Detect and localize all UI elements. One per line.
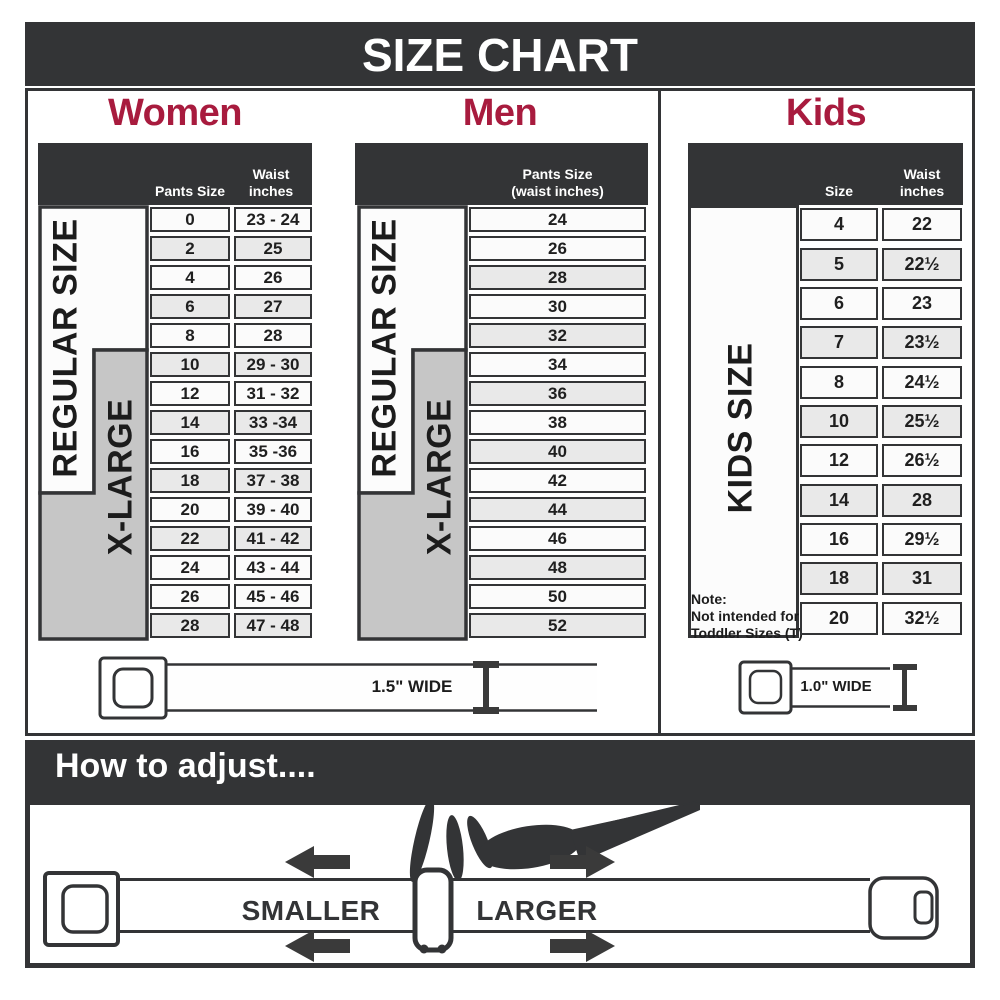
table-row: 52 [469,611,646,640]
size-cell: 6 [150,294,230,319]
table-row: 422 [800,205,962,244]
belt-buckle-button [114,669,152,707]
table-row: 2847 - 48 [150,611,312,640]
waist-cell: 28 [234,323,312,348]
table-row: 1029 - 30 [150,350,312,379]
size-cell: 5 [800,248,878,281]
size-cell: 30 [469,294,646,319]
belt-buckle-button [63,886,107,932]
size-cell: 28 [469,265,646,290]
size-cell: 10 [150,352,230,377]
slider-foot [438,945,447,954]
table-row: 1428 [800,481,962,520]
size-cell: 12 [150,381,230,406]
waist-cell: 45 - 46 [234,584,312,609]
table-row: 40 [469,437,646,466]
slider-foot [420,945,429,954]
size-cell: 7 [800,326,878,359]
kids-note-line1: Note: [691,591,803,607]
adjust-illustration [25,800,975,968]
table-row: 44 [469,495,646,524]
size-cell: 22 [150,526,230,551]
table-row: 623 [800,284,962,323]
arrow-left-icon [285,846,350,878]
size-cell: 10 [800,405,878,438]
belt-tip-slot [915,892,932,923]
panel-divider [658,88,661,736]
size-cell: 44 [469,497,646,522]
size-cell: 40 [469,439,646,464]
women-pants-size-header: Pants Size [150,183,230,200]
waist-cell: 35 -36 [234,439,312,464]
men-header-line2: (waist inches) [469,183,646,200]
table-row: 426 [150,263,312,292]
size-cell: 26 [150,584,230,609]
waist-cell: 32½ [882,602,962,635]
table-row: 30 [469,292,646,321]
kids-table-body: 422522½623723½824½1025½1226½14281629½183… [800,205,962,638]
size-cell: 16 [800,523,878,556]
size-cell: 24 [469,207,646,232]
table-row: 32 [469,321,646,350]
table-row: 1025½ [800,402,962,441]
size-cell: 34 [469,352,646,377]
table-row: 2039 - 40 [150,495,312,524]
men-table-body: 242628303234363840424446485052 [469,205,646,640]
table-row: 24 [469,205,646,234]
table-row: 50 [469,582,646,611]
size-cell: 26 [469,236,646,261]
waist-cell: 23½ [882,326,962,359]
table-row: 42 [469,466,646,495]
waist-cell: 39 - 40 [234,497,312,522]
larger-label: LARGER [462,895,612,927]
waist-cell: 24½ [882,366,962,399]
waist-cell: 28 [882,484,962,517]
waist-cell: 31 [882,562,962,595]
waist-cell: 25½ [882,405,962,438]
size-cell: 4 [150,265,230,290]
size-cell: 24 [150,555,230,580]
waist-cell: 22½ [882,248,962,281]
size-cell: 8 [800,366,878,399]
waist-cell: 37 - 38 [234,468,312,493]
size-cell: 2 [150,236,230,261]
waist-cell: 26 [234,265,312,290]
table-row: 48 [469,553,646,582]
table-row: 1231 - 32 [150,379,312,408]
waist-cell: 25 [234,236,312,261]
size-cell: 46 [469,526,646,551]
waist-cell: 22 [882,208,962,241]
table-row: 824½ [800,362,962,401]
kids-waist-header-line2: inches [882,183,962,200]
waist-cell: 26½ [882,444,962,477]
table-row: 2443 - 44 [150,553,312,582]
hand-icon [405,800,700,884]
table-row: 627 [150,292,312,321]
size-cell: 6 [800,287,878,320]
kids-size-label: KIDS SIZE [722,343,761,514]
women-regular-size-label: REGULAR SIZE [47,218,86,477]
belt-buckle-button [750,671,781,703]
size-cell: 8 [150,323,230,348]
size-cell: 42 [469,468,646,493]
table-row: 1635 -36 [150,437,312,466]
waist-cell: 29½ [882,523,962,556]
men-header-line1: Pants Size [469,166,646,183]
table-row: 023 - 24 [150,205,312,234]
women-section-title: Women [40,92,310,136]
table-row: 2241 - 42 [150,524,312,553]
size-cell: 16 [150,439,230,464]
waist-cell: 41 - 42 [234,526,312,551]
table-row: 2645 - 46 [150,582,312,611]
men-xlarge-label: X-LARGE [421,399,460,556]
waist-cell: 43 - 44 [234,555,312,580]
waist-cell: 31 - 32 [234,381,312,406]
waist-cell: 23 - 24 [234,207,312,232]
women-waist-header: Waist inches [232,166,310,200]
waist-cell: 47 - 48 [234,613,312,638]
size-cell: 28 [150,613,230,638]
size-cell: 14 [150,410,230,435]
adult-belt-width-label: 1.5" WIDE [337,677,487,697]
size-cell: 4 [800,208,878,241]
size-cell: 36 [469,381,646,406]
size-cell: 12 [800,444,878,477]
table-row: 723½ [800,323,962,362]
table-row: 1837 - 38 [150,466,312,495]
men-section-title: Men [360,92,640,136]
size-cell: 32 [469,323,646,348]
how-to-adjust-title: How to adjust.... [55,747,316,786]
size-chart-page: SIZE CHART Women Men Kids Pants Size Wai… [0,0,1000,1000]
table-row: 1433 -34 [150,408,312,437]
kids-size-header: Size [800,183,878,200]
kids-waist-header-line1: Waist [882,166,962,183]
arrow-left-icon [285,930,350,962]
kids-note-line2: Not intended for [691,608,803,624]
waist-cell: 33 -34 [234,410,312,435]
smaller-label: SMALLER [236,895,386,927]
table-row: 1226½ [800,441,962,480]
size-cell: 20 [800,602,878,635]
kids-section-title: Kids [690,92,962,136]
men-pants-size-header: Pants Size (waist inches) [469,166,646,200]
table-row: 34 [469,350,646,379]
men-regular-size-label: REGULAR SIZE [366,218,405,477]
table-row: 1629½ [800,520,962,559]
size-cell: 52 [469,613,646,638]
size-cell: 50 [469,584,646,609]
waist-cell: 29 - 30 [234,352,312,377]
table-row: 1831 [800,559,962,598]
waist-cell: 27 [234,294,312,319]
size-cell: 20 [150,497,230,522]
size-cell: 14 [800,484,878,517]
table-row: 36 [469,379,646,408]
table-row: 2032½ [800,599,962,638]
waist-cell: 23 [882,287,962,320]
width-marker-icon [893,664,917,711]
size-cell: 48 [469,555,646,580]
table-row: 28 [469,263,646,292]
page-title: SIZE CHART [25,22,975,86]
size-cell: 18 [800,562,878,595]
women-xlarge-label: X-LARGE [102,399,141,556]
table-row: 26 [469,234,646,263]
table-row: 225 [150,234,312,263]
table-row: 828 [150,321,312,350]
kids-note: Note: Not intended for Toddler Sizes (T) [691,591,803,642]
belt-adjuster-slider [415,870,451,950]
arrow-right-icon [550,930,615,962]
kids-belt-width-label: 1.0" WIDE [788,678,884,695]
size-cell: 18 [150,468,230,493]
size-cell: 0 [150,207,230,232]
women-waist-header-line2: inches [232,183,310,200]
size-cell: 38 [469,410,646,435]
kids-waist-header: Waist inches [882,166,962,200]
women-waist-header-line1: Waist [232,166,310,183]
women-table-body: 023 - 242254266278281029 - 301231 - 3214… [150,205,312,640]
table-row: 38 [469,408,646,437]
kids-note-line3: Toddler Sizes (T) [691,625,803,641]
table-row: 522½ [800,244,962,283]
table-row: 46 [469,524,646,553]
